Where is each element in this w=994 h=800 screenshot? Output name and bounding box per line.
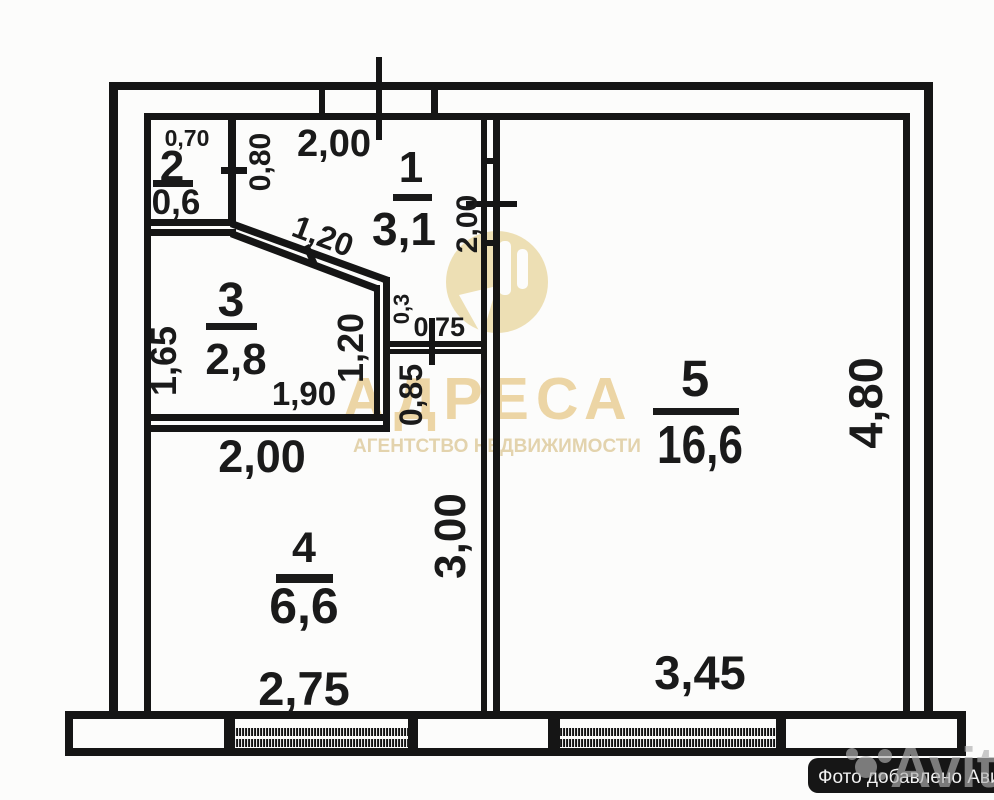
svg-text:4: 4 — [292, 524, 316, 572]
svg-text:2,75: 2,75 — [258, 662, 349, 715]
svg-text:0,6: 0,6 — [152, 183, 201, 222]
svg-text:75: 75 — [435, 312, 465, 342]
svg-text:1,90: 1,90 — [272, 375, 336, 412]
svg-text:2,8: 2,8 — [205, 335, 266, 384]
svg-text:4,80: 4,80 — [839, 357, 892, 448]
svg-text:2,00: 2,00 — [297, 123, 371, 165]
svg-text:2,00: 2,00 — [451, 195, 484, 253]
svg-text:1: 1 — [399, 143, 423, 192]
svg-text:0,85: 0,85 — [393, 364, 429, 426]
svg-text:3,1: 3,1 — [372, 203, 436, 255]
svg-text:6,6: 6,6 — [269, 578, 339, 634]
svg-text:0,3: 0,3 — [389, 294, 414, 325]
svg-text:2,00: 2,00 — [218, 431, 306, 482]
svg-text:1,65: 1,65 — [143, 326, 184, 396]
svg-text:3: 3 — [218, 274, 245, 327]
svg-text:1,20: 1,20 — [330, 313, 371, 383]
svg-text:0,80: 0,80 — [244, 133, 277, 191]
svg-text:5: 5 — [681, 350, 709, 407]
svg-text:3,00: 3,00 — [426, 493, 475, 579]
svg-text:3,45: 3,45 — [654, 646, 745, 699]
svg-text:0: 0 — [413, 312, 428, 342]
svg-text:Avit: Avit — [890, 736, 994, 800]
svg-text:16,6: 16,6 — [657, 415, 743, 475]
